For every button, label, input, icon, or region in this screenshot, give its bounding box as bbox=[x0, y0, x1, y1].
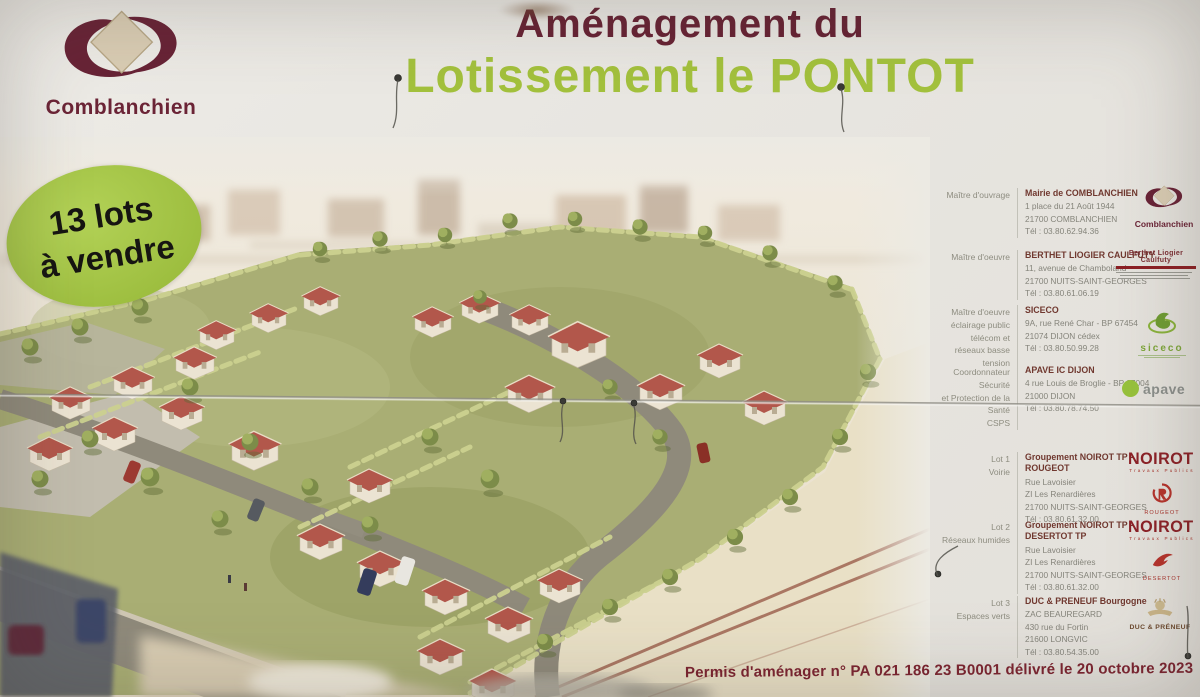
siceco-logo: siceco bbox=[1130, 308, 1194, 359]
apave-logo: apave bbox=[1122, 380, 1185, 397]
siceco-logo-text: siceco bbox=[1130, 343, 1194, 354]
comblanchien-small-logo: Comblanchien bbox=[1132, 184, 1196, 229]
contact-role: Coordonnateur Sécurité et Protection de … bbox=[930, 365, 1017, 430]
comblanchien-logo-text: Comblanchien bbox=[26, 96, 216, 120]
desertot-logo-text: DESERTOT bbox=[1138, 576, 1186, 582]
apave-circle-icon bbox=[1122, 380, 1139, 397]
contact-role: Lot 1 Voirie bbox=[930, 452, 1017, 526]
contact-role: Maître d'oeuvre éclairage public télécom… bbox=[930, 305, 1017, 370]
contact-apave: Coordonnateur Sécurité et Protection de … bbox=[930, 365, 1198, 430]
sign-title: Aménagement du Lotissement le PONTOT bbox=[310, 2, 1070, 104]
rougeot-logo-text: ROUGEOT bbox=[1140, 510, 1184, 516]
duc-preneuf-logo-text: DUC & PRÉNEUF bbox=[1124, 624, 1196, 631]
stain-mark bbox=[498, 0, 576, 20]
berthet-logo-text: Berthet Liogier Caulfuty bbox=[1116, 250, 1196, 264]
apave-logo-text: apave bbox=[1143, 381, 1185, 397]
duc-preneuf-logo: DUC & PRÉNEUF bbox=[1124, 598, 1196, 631]
contact-role: Lot 3 Espaces verts bbox=[930, 596, 1017, 658]
comblanchien-small-logo-text: Comblanchien bbox=[1132, 219, 1196, 229]
noirot-logo-subtext: Travaux Publics bbox=[1128, 468, 1196, 473]
construction-sign-photo: Comblanchien Aménagement du Lotissement … bbox=[0, 0, 1200, 697]
title-line-1: Aménagement du bbox=[310, 2, 1070, 47]
noirot-logo-lot1: NOIROT Travaux Publics bbox=[1128, 450, 1196, 473]
contacts-panel: Maître d'ouvrage Mairie de COMBLANCHIEN … bbox=[930, 140, 1198, 697]
noirot-logo-subtext: Travaux Publics bbox=[1128, 536, 1196, 541]
contact-role: Maître d'ouvrage bbox=[930, 188, 1017, 238]
desertot-logo: DESERTOT bbox=[1138, 550, 1186, 582]
noirot-logo-text: NOIROT bbox=[1128, 518, 1193, 535]
duc-preneuf-crest-icon bbox=[1145, 598, 1175, 618]
contact-name: APAVE IC DIJON bbox=[1025, 365, 1177, 376]
rougeot-r-icon bbox=[1151, 482, 1173, 504]
noirot-logo-lot2: NOIROT Travaux Publics bbox=[1128, 518, 1196, 541]
berthet-liogier-caulfuty-logo: Berthet Liogier Caulfuty bbox=[1116, 250, 1196, 281]
comblanchien-logo: Comblanchien bbox=[26, 6, 216, 120]
rougeot-logo: ROUGEOT bbox=[1140, 482, 1184, 516]
comblanchien-swirl-icon bbox=[1140, 184, 1188, 214]
title-line-2: Lotissement le PONTOT bbox=[310, 49, 1070, 104]
siceco-bird-icon bbox=[1142, 308, 1182, 338]
noirot-logo-text: NOIROT bbox=[1128, 450, 1193, 467]
contact-role: Lot 2 Réseaux humides bbox=[930, 520, 1017, 594]
contact-role: Maître d'oeuvre bbox=[930, 250, 1017, 300]
berthet-logo-bar bbox=[1116, 266, 1196, 269]
desertot-bird-icon bbox=[1149, 550, 1175, 570]
comblanchien-swirl-icon bbox=[46, 6, 196, 98]
